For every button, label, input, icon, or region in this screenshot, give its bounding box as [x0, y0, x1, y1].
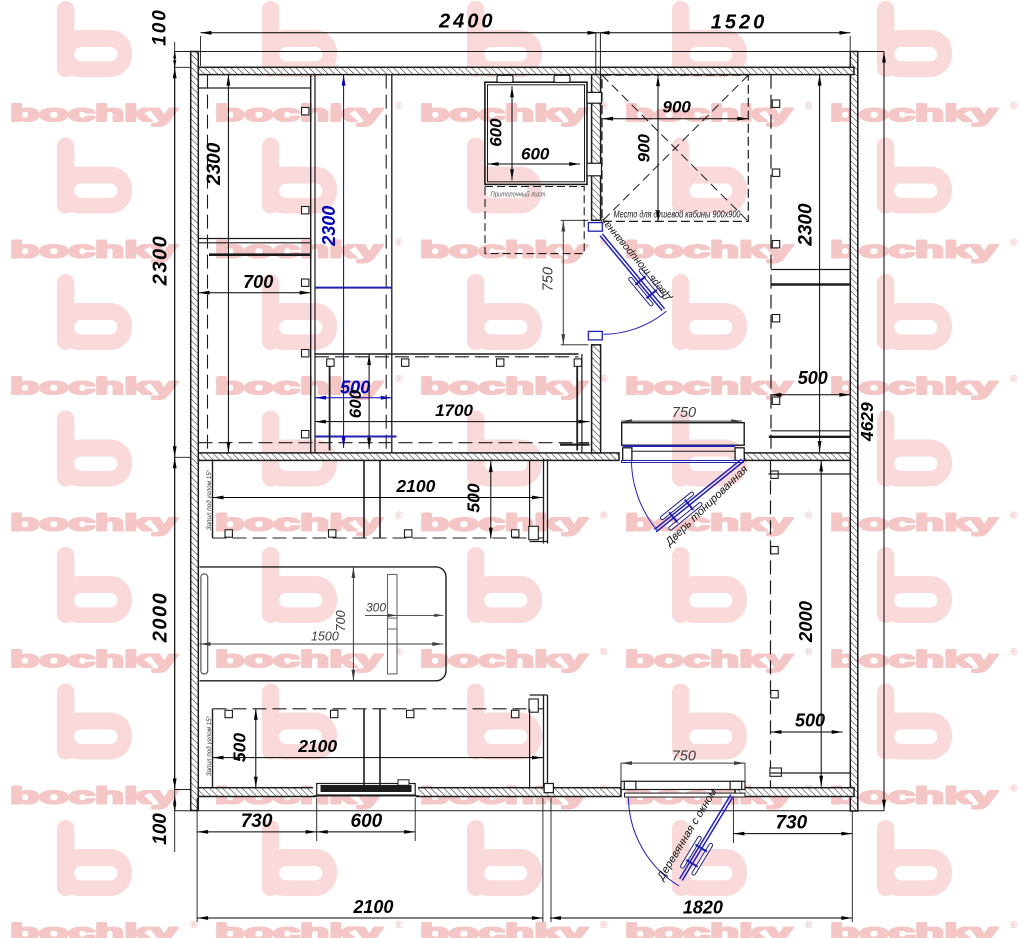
svg-text:700: 700 — [334, 610, 348, 631]
svg-text:2100: 2100 — [395, 476, 435, 496]
svg-text:bochky: bochky — [625, 919, 793, 938]
svg-text:bochky: bochky — [10, 373, 178, 399]
svg-text:Запил под углом 15°: Запил под углом 15° — [205, 715, 213, 776]
svg-text:900: 900 — [663, 98, 692, 117]
svg-text:2300: 2300 — [204, 142, 225, 186]
svg-text:®: ® — [395, 101, 403, 112]
svg-text:bochky: bochky — [420, 510, 588, 536]
svg-text:®: ® — [805, 101, 813, 112]
svg-text:®: ® — [600, 920, 608, 931]
svg-text:2100: 2100 — [297, 736, 337, 756]
svg-text:®: ® — [600, 647, 608, 658]
svg-text:2300: 2300 — [796, 203, 817, 247]
svg-text:730: 730 — [241, 811, 273, 832]
svg-text:600: 600 — [346, 389, 365, 418]
svg-text:®: ® — [805, 920, 813, 931]
svg-text:bochky: bochky — [420, 373, 588, 399]
svg-text:2300: 2300 — [150, 235, 172, 287]
svg-text:bochky: bochky — [10, 510, 178, 536]
svg-text:®: ® — [600, 511, 608, 522]
svg-text:600: 600 — [521, 145, 550, 164]
svg-text:®: ® — [805, 511, 813, 522]
svg-text:bochky: bochky — [215, 646, 383, 672]
svg-text:bochky: bochky — [420, 646, 588, 672]
svg-text:750: 750 — [672, 405, 696, 421]
svg-text:Запил под углом 15°: Запил под углом 15° — [205, 469, 213, 530]
svg-text:bochky: bochky — [215, 100, 383, 126]
svg-text:900: 900 — [635, 133, 654, 162]
svg-text:bochky: bochky — [215, 237, 383, 263]
svg-text:750: 750 — [541, 267, 557, 291]
svg-text:bochky: bochky — [625, 646, 793, 672]
svg-text:Притопочный лист: Притопочный лист — [491, 191, 546, 199]
svg-text:300: 300 — [366, 601, 386, 615]
svg-text:bochky: bochky — [10, 646, 178, 672]
svg-text:700: 700 — [243, 272, 273, 292]
svg-text:2400: 2400 — [438, 11, 496, 33]
svg-text:500: 500 — [795, 711, 825, 731]
svg-text:500: 500 — [464, 483, 484, 512]
svg-text:®: ® — [1010, 920, 1018, 931]
svg-text:2000: 2000 — [150, 592, 172, 644]
svg-text:100: 100 — [150, 8, 171, 46]
svg-text:®: ® — [1010, 511, 1018, 522]
svg-text:2300: 2300 — [319, 206, 339, 247]
svg-text:4629: 4629 — [857, 402, 877, 442]
svg-text:®: ® — [395, 374, 403, 385]
svg-text:1700: 1700 — [435, 401, 473, 420]
svg-text:®: ® — [395, 238, 403, 249]
svg-text:®: ® — [1010, 101, 1018, 112]
svg-text:®: ® — [1010, 374, 1018, 385]
svg-text:bochky: bochky — [625, 100, 793, 126]
svg-text:bochky: bochky — [10, 783, 178, 809]
svg-text:750: 750 — [672, 749, 696, 765]
svg-text:Место для душевой кабины 900х9: Место для душевой кабины 900х900 — [614, 209, 741, 221]
svg-text:2000: 2000 — [795, 600, 816, 643]
svg-text:2100: 2100 — [352, 897, 393, 917]
svg-text:bochky: bochky — [10, 100, 178, 126]
svg-text:600: 600 — [487, 118, 506, 147]
svg-text:1520: 1520 — [711, 12, 768, 34]
svg-text:bochky: bochky — [625, 373, 793, 399]
svg-text:®: ® — [1010, 784, 1018, 795]
svg-text:bochky: bochky — [215, 510, 383, 536]
svg-text:bochky: bochky — [420, 919, 588, 938]
svg-text:600: 600 — [351, 811, 383, 832]
svg-text:bochky: bochky — [10, 919, 178, 938]
svg-text:bochky: bochky — [625, 237, 793, 263]
svg-text:730: 730 — [775, 813, 807, 834]
svg-text:bochky: bochky — [215, 919, 383, 938]
svg-text:1820: 1820 — [683, 898, 723, 918]
svg-text:®: ® — [805, 647, 813, 658]
svg-text:®: ® — [1010, 238, 1018, 249]
svg-text:®: ® — [1010, 647, 1018, 658]
svg-text:100: 100 — [150, 813, 171, 845]
svg-text:bochky: bochky — [830, 919, 998, 938]
svg-text:500: 500 — [798, 368, 828, 388]
svg-text:bochky: bochky — [625, 510, 793, 536]
svg-text:500: 500 — [230, 733, 250, 762]
svg-text:®: ® — [395, 920, 403, 931]
svg-text:®: ® — [395, 511, 403, 522]
